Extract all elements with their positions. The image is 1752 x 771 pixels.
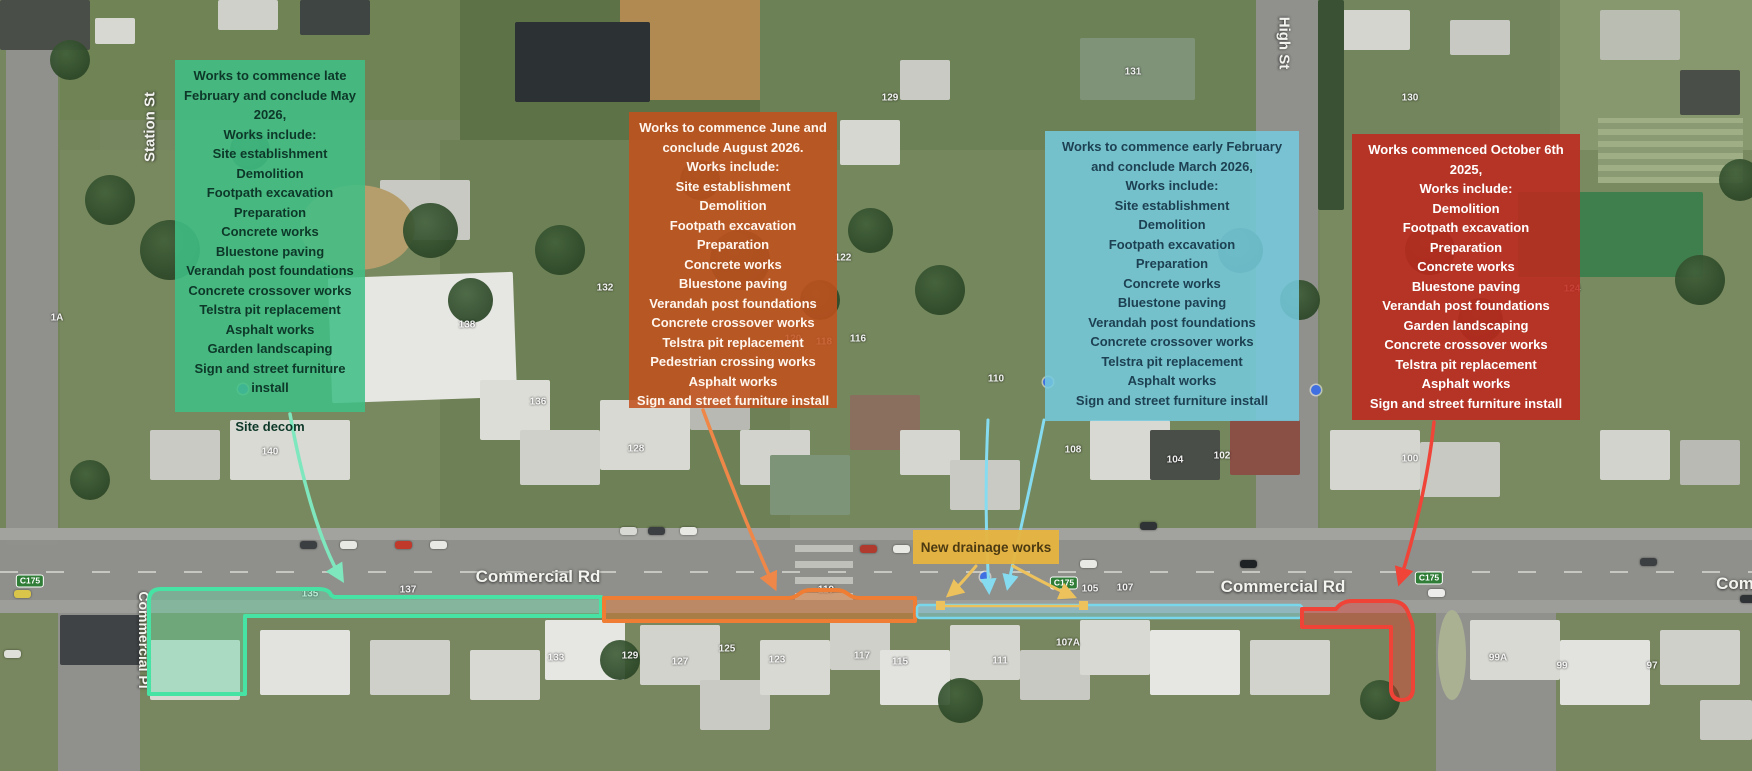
stage-line: Demolition <box>1050 215 1294 235</box>
aerial-map-canvas: Station StHigh StCommercial RdCommercial… <box>0 0 1752 771</box>
stage-title: Works to commence June and conclude Augu… <box>634 118 832 157</box>
stage-line: Preparation <box>180 203 360 223</box>
stage-box-stage-1-green[interactable]: Works to commence late February and conc… <box>175 60 365 412</box>
stage-line: Site establishment <box>634 177 832 197</box>
stage-line: Preparation <box>1357 238 1575 258</box>
stage-title: Works to commence late February and conc… <box>180 66 360 125</box>
stage-line: Footpath excavation <box>180 183 360 203</box>
stage-line: Concrete crossover works <box>180 281 360 301</box>
stage-line: Pedestrian crossing works <box>634 352 832 372</box>
stage-line: Verandah post foundations <box>1357 296 1575 316</box>
stage-title: Works commenced October 6th 2025, <box>1357 140 1575 179</box>
stage-line: Garden landscaping <box>1357 316 1575 336</box>
stage-line: Concrete works <box>634 255 832 275</box>
stage-line: Verandah post foundations <box>634 294 832 314</box>
drainage-works-label-text: New drainage works <box>921 540 1052 555</box>
stage-line: Concrete crossover works <box>1357 335 1575 355</box>
stage-line: Verandah post foundations <box>180 261 360 281</box>
stage-line: Asphalt works <box>634 372 832 392</box>
drainage-works-label[interactable]: New drainage works <box>913 530 1059 564</box>
stage-footer: Site decom <box>180 417 360 437</box>
stage-line: Works include: <box>634 157 832 177</box>
stage-line: Sign and street furniture install <box>180 359 360 398</box>
stage-line: Footpath excavation <box>1357 218 1575 238</box>
stage-line: Preparation <box>634 235 832 255</box>
stage-line: Site establishment <box>180 144 360 164</box>
stage-line: Works include: <box>1357 179 1575 199</box>
stage-line: Footpath excavation <box>1050 235 1294 255</box>
stage-line: Footpath excavation <box>634 216 832 236</box>
stage-line: Site establishment <box>1050 196 1294 216</box>
stage-line: Preparation <box>1050 254 1294 274</box>
stage-line: Bluestone paving <box>1050 293 1294 313</box>
stage-line: Works include: <box>1050 176 1294 196</box>
stage-line: Sign and street furniture install <box>1050 391 1294 411</box>
stage-line: Asphalt works <box>1050 371 1294 391</box>
stage-box-stage-4-red[interactable]: Works commenced October 6th 2025,Works i… <box>1352 134 1580 420</box>
stage-line: Asphalt works <box>1357 374 1575 394</box>
stage-line: Concrete works <box>180 222 360 242</box>
stage-line: Concrete works <box>1050 274 1294 294</box>
stage-line: Concrete crossover works <box>1050 332 1294 352</box>
stage-line: Bluestone paving <box>634 274 832 294</box>
stage-line: Sign and street furniture install <box>1357 394 1575 414</box>
stage-line: Bluestone paving <box>1357 277 1575 297</box>
stage-box-stage-2-orange[interactable]: Works to commence June and conclude Augu… <box>629 112 837 408</box>
stage-line: Garden landscaping <box>180 339 360 359</box>
stage-line: Telstra pit replacement <box>180 300 360 320</box>
stage-line: Sign and street furniture install <box>634 391 832 411</box>
stage-line: Bluestone paving <box>180 242 360 262</box>
stage-line: Asphalt works <box>180 320 360 340</box>
stage-box-stage-3-blue[interactable]: Works to commence early February and con… <box>1045 131 1299 421</box>
stage-line: Verandah post foundations <box>1050 313 1294 333</box>
stage-line: Works include: <box>180 125 360 145</box>
stage-line: Demolition <box>634 196 832 216</box>
stage-line: Telstra pit replacement <box>1050 352 1294 372</box>
stage-line: Telstra pit replacement <box>634 333 832 353</box>
stage-line: Demolition <box>1357 199 1575 219</box>
stage-line: Concrete crossover works <box>634 313 832 333</box>
stage-callouts-layer: New drainage works Works to commence lat… <box>0 0 1752 771</box>
stage-title: Works to commence early February and con… <box>1050 137 1294 176</box>
stage-line: Demolition <box>180 164 360 184</box>
stage-line: Telstra pit replacement <box>1357 355 1575 375</box>
stage-line: Concrete works <box>1357 257 1575 277</box>
